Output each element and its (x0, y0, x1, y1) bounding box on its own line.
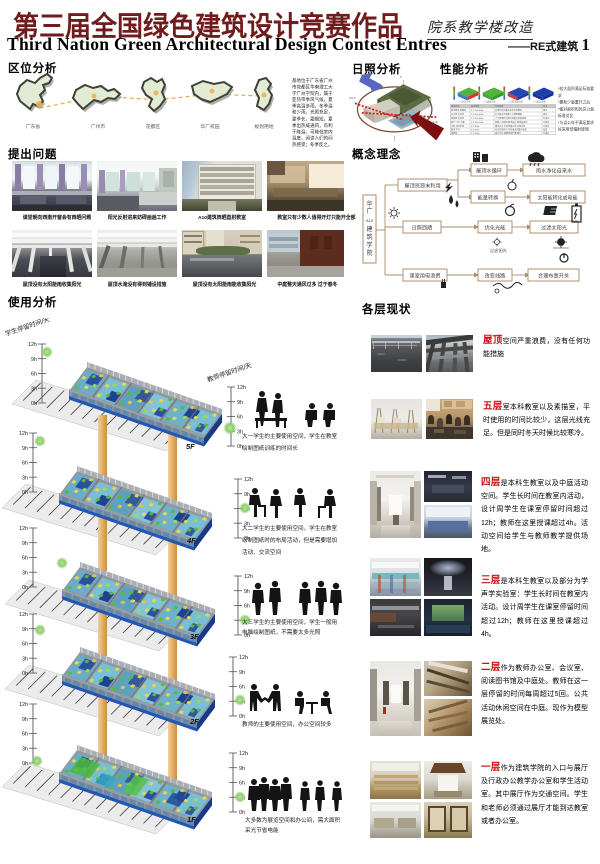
svg-text:大二学生的主要使用空间，学生在教室: 大二学生的主要使用空间，学生在教室 (242, 524, 338, 532)
svg-text:1-1采光分析: 1-1采光分析 (459, 100, 472, 103)
svg-text:2F: 2F (189, 717, 199, 726)
svg-text:大一学生的主要使用空间，学生在教室: 大一学生的主要使用空间，学生在教室 (242, 432, 338, 440)
svg-text:广州市: 广州市 (91, 123, 106, 130)
svg-text:屋顶水循环: 屋顶水循环 (476, 167, 502, 175)
svg-text:学: 学 (366, 241, 372, 249)
svg-text:广东省: 广东省 (26, 123, 41, 130)
svg-text:5F: 5F (186, 442, 195, 451)
svg-text:太阳能转化成电能: 太阳能转化成电能 (537, 195, 577, 202)
svg-text:广: 广 (366, 207, 372, 215)
svg-text:绘制图纸训练的时间长: 绘制图纸训练的时间长 (242, 444, 298, 452)
svg-text:筑: 筑 (366, 233, 372, 241)
svg-text:2-1热环境分析: 2-1热环境分析 (509, 100, 524, 103)
svg-text:3F: 3F (190, 632, 199, 641)
svg-text:采光节省电能: 采光节省电能 (245, 826, 279, 834)
svg-text:华广校园: 华广校园 (200, 123, 219, 130)
svg-text:2-2能耗分析: 2-2能耗分析 (534, 100, 547, 103)
svg-text:优化光能: 优化光能 (485, 224, 506, 232)
svg-text:电脑绘制图纸，不需要太多光照: 电脑绘制图纸，不需要太多光照 (242, 628, 321, 636)
svg-text:华: 华 (366, 200, 372, 208)
svg-text:教师停留时间/天: 教师停留时间/天 (206, 360, 253, 384)
svg-text:大多数为展览空间和办公间，需大面积: 大多数为展览空间和办公间，需大面积 (245, 816, 341, 824)
svg-text:4F: 4F (186, 536, 196, 545)
svg-text:2.5 300lx: 2.5 300lx (471, 126, 480, 128)
svg-text:绘制图纸时的布局活动，但是需要增加: 绘制图纸时的布局活动，但是需要增加 (242, 536, 338, 544)
svg-text:学生停留时间/天: 学生停留时间/天 (4, 318, 51, 338)
svg-text:1-2通风分析: 1-2通风分析 (484, 100, 497, 103)
svg-text:2.2 250-300lx: 2.2 250-300lx (471, 118, 485, 120)
svg-text:院: 院 (366, 249, 372, 257)
svg-text:日照西晒: 日照西晒 (412, 225, 433, 232)
svg-text:1F: 1F (187, 815, 196, 824)
svg-text:1.2 100lx: 1.2 100lx (471, 133, 480, 135)
svg-text:课室用电浪费: 课室用电浪费 (409, 272, 440, 280)
svg-text:18:00: 18:00 (349, 96, 356, 100)
svg-text:3.2 350-450lx: 3.2 350-450lx (471, 110, 485, 112)
svg-text:1.8 150-250lx: 1.8 150-250lx (471, 122, 485, 124)
svg-text:2.8 300-400lx: 2.8 300-400lx (471, 114, 485, 116)
svg-text:活动、交流空间: 活动、交流空间 (242, 548, 282, 556)
svg-text:花都区: 花都区 (146, 123, 161, 130)
svg-text:规划用地: 规划用地 (254, 123, 273, 130)
svg-text:大三学生的主要使用空间，学生一般用: 大三学生的主要使用空间，学生一般用 (242, 618, 337, 626)
svg-text:教师的主要使用空间，办公空间较多: 教师的主要使用空间，办公空间较多 (242, 720, 332, 728)
svg-text:过滤太阳光: 过滤太阳光 (541, 224, 567, 232)
svg-text:能量转换: 能量转换 (478, 194, 500, 202)
svg-text:建: 建 (366, 225, 372, 233)
svg-text:合理布置开关: 合理布置开关 (538, 272, 569, 280)
svg-text:雨水净化自来水: 雨水净化自来水 (536, 167, 573, 175)
svg-text:过滤'阳光: 过滤'阳光 (490, 247, 507, 253)
svg-text:5.0 500lx: 5.0 500lx (471, 130, 480, 132)
svg-text:改变线路: 改变线路 (485, 272, 507, 280)
svg-text:6:00: 6:00 (433, 120, 439, 124)
svg-text:N: N (400, 75, 402, 79)
svg-text:A10: A10 (366, 218, 374, 223)
svg-text:屋顶资源未利用: 屋顶资源未利用 (404, 182, 440, 190)
